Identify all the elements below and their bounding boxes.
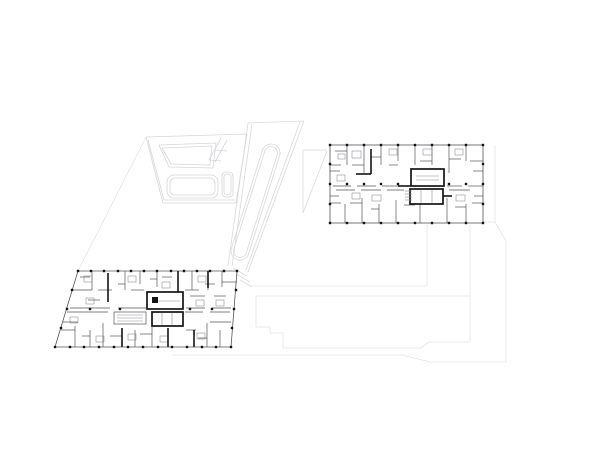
slab-plan-columns-shape (233, 308, 235, 310)
slab-plan-columns-shape (236, 270, 238, 272)
site-outline-lines-shape (495, 222, 506, 241)
slab-plan-columns-shape (66, 308, 68, 310)
slab-plan-columns-shape (103, 270, 105, 272)
slab-plan-columns-shape (186, 346, 188, 348)
tower-plan-columns-shape (448, 144, 450, 146)
site-outline-lines-shape (421, 342, 429, 348)
tower-plan-fixtures-shape (389, 149, 397, 155)
tower-plan-columns-shape (363, 222, 365, 224)
slab-plan-columns-shape (223, 270, 225, 272)
tower-plan-cores-shape (410, 189, 443, 204)
ramp-lines-shape (228, 123, 248, 266)
tower-plan-outline (330, 145, 483, 223)
tower-plan-columns-shape (448, 222, 450, 224)
entry-pavilion-plan-shape (148, 140, 164, 200)
tower-plan-columns-shape (329, 203, 331, 205)
tower-plan-columns-shape (465, 144, 467, 146)
tower-plan-columns-shape (482, 203, 484, 205)
slab-plan-columns-shape (143, 270, 145, 272)
tower-plan-columns-shape (482, 163, 484, 165)
tower-plan-columns-shape (397, 144, 399, 146)
tower-plan-columns-shape (414, 222, 416, 224)
tower-plan-columns-shape (346, 222, 348, 224)
tower-plan-fixtures-shape (423, 149, 432, 155)
ramp-lines-shape (303, 151, 327, 213)
tower-plan-fixtures-shape (352, 193, 360, 199)
tower-plan-columns-shape (397, 222, 399, 224)
tower-plan-columns-shape (329, 163, 331, 165)
tower-plan-columns-shape (448, 183, 450, 185)
slab-plan-columns-shape (117, 270, 119, 272)
slab-plan-columns-shape (235, 289, 237, 291)
tower-plan-walls (330, 145, 483, 223)
tower-plan-fixtures-shape (337, 175, 345, 181)
slab-plan-columns-shape (119, 308, 121, 310)
tower-plan-columns-shape (329, 183, 331, 185)
ramp-lines-shape (233, 268, 247, 276)
slab-plan-cores-shape (152, 312, 183, 326)
slab-plan-columns-shape (211, 308, 213, 310)
tower-plan-columns-shape (482, 144, 484, 146)
entry-pavilion-plan-shape (215, 150, 227, 151)
tower-plan-columns-shape (431, 144, 433, 146)
tower-plan-columns-shape (380, 183, 382, 185)
tower-plan-columns-shape (329, 222, 331, 224)
slab-plan-columns-shape (54, 346, 56, 348)
tower-plan-columns-shape (482, 222, 484, 224)
slab-plan-columns-shape (196, 270, 198, 272)
slab-plan-columns-shape (215, 346, 217, 348)
slab-plan-columns-shape (98, 346, 100, 348)
slab-plan-core-equipment (152, 297, 158, 303)
tower-plan-columns-shape (380, 144, 382, 146)
slab-plan-columns-shape (83, 346, 85, 348)
slab-plan-columns-shape (127, 346, 129, 348)
tower-plan-columns-shape (465, 183, 467, 185)
slab-plan-fixtures-shape (160, 336, 168, 342)
slab-plan-columns-shape (130, 270, 132, 272)
slab-plan-columns-shape (69, 346, 71, 348)
entry-pavilion-plan-shape (170, 178, 215, 195)
slab-plan-fixtures-shape (216, 300, 224, 306)
slab-plan-columns-shape (209, 270, 211, 272)
slab-plan-fixtures-shape (196, 300, 204, 306)
tower-plan-columns-shape (414, 144, 416, 146)
slab-plan-fixtures-shape (128, 276, 136, 282)
entry-pavilion-plan (146, 134, 247, 203)
slab-plan-columns-shape (157, 346, 159, 348)
slab-plan-fixtures-shape (198, 276, 206, 282)
slab-plan-fixtures-shape (86, 298, 94, 304)
tower-plan-fixtures-shape (372, 195, 381, 201)
tower-plan-fixtures (337, 149, 465, 201)
slab-plan-columns-shape (60, 327, 62, 329)
tower-plan-columns-shape (397, 183, 399, 185)
slab-plan-columns-shape (77, 270, 79, 272)
tower-plan-cores-shape (411, 169, 444, 186)
slab-plan-core-equipment-shape (152, 297, 158, 303)
slab-plan-columns-shape (89, 308, 91, 310)
tower-plan-fixtures-shape (455, 149, 463, 155)
ramp-lines-shape (240, 280, 252, 287)
slab-plan-columns-shape (90, 270, 92, 272)
slab-plan-columns-shape (171, 346, 173, 348)
tower-plan-columns-shape (329, 144, 331, 146)
slab-plan-columns-shape (156, 270, 158, 272)
slab-plan-columns-shape (230, 346, 232, 348)
tower-plan-cores (410, 169, 444, 204)
tower-plan-columns-shape (380, 222, 382, 224)
tower-plan-columns-shape (346, 144, 348, 146)
tower-plan-columns-shape (363, 144, 365, 146)
slab-plan-columns-shape (113, 346, 115, 348)
entry-pavilion-plan-shape (146, 134, 247, 203)
slab-plan-columns-shape (189, 308, 191, 310)
ramp-lines-shape (248, 121, 304, 123)
slab-plan-columns-shape (142, 346, 144, 348)
tower-plan-columns-shape (431, 222, 433, 224)
tower-plan-fixtures-shape (456, 195, 465, 201)
tower-plan-columns-shape (346, 183, 348, 185)
slab-plan-columns-shape (201, 346, 203, 348)
slab-plan-columns-shape (170, 270, 172, 272)
tower-plan-columns-shape (465, 222, 467, 224)
entry-pavilion-plan-shape (224, 174, 231, 195)
tower-plan-columns-shape (482, 183, 484, 185)
drawing-sheet (0, 0, 600, 450)
ramp-lines-shape (248, 121, 304, 272)
slab-plan-columns (54, 270, 238, 348)
tower-plan-fixtures-shape (338, 154, 345, 159)
tower-plan-columns-shape (363, 183, 365, 185)
entry-pavilion-plan-shape (162, 146, 212, 165)
site-outline-lines-shape (78, 137, 146, 271)
entry-pavilion-plan-shape (167, 175, 218, 198)
ramp-lines-shape (236, 274, 250, 282)
slab-plan-outline-shape (55, 271, 237, 347)
slab-plan-columns-shape (231, 327, 233, 329)
slab-plan-outline (55, 271, 237, 347)
tower-plan-fixtures-shape (352, 151, 361, 158)
slab-plan-columns-shape (71, 289, 73, 291)
ramp-lines-shape (232, 145, 279, 259)
ramp-lines (228, 121, 327, 287)
tower-plan-outline-shape (330, 145, 483, 223)
slab-plan-columns-shape (183, 270, 185, 272)
floor-plan-canvas (0, 0, 600, 450)
site-outline-lines-shape (402, 355, 430, 362)
slab-plan-fixtures-shape (162, 282, 170, 288)
